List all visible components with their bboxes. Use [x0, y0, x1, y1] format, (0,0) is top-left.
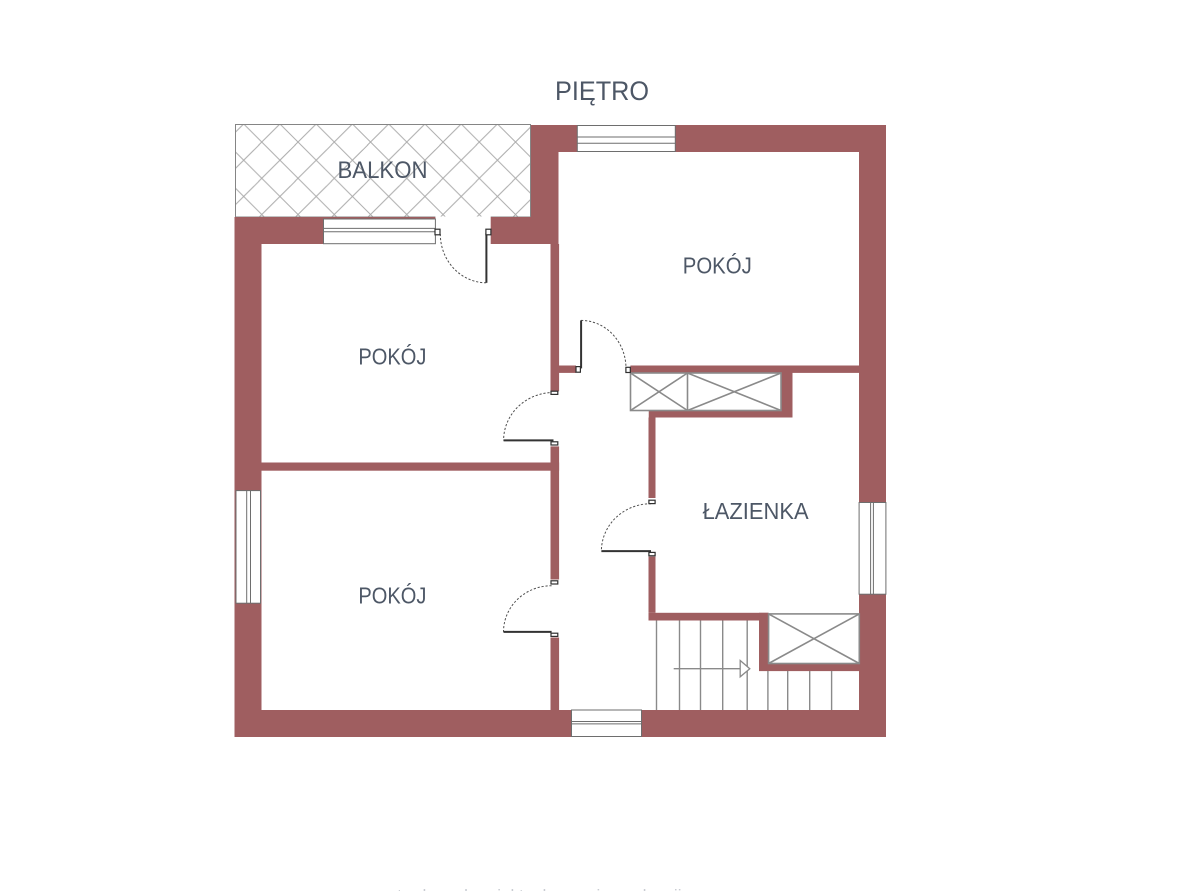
svg-text:ŁAZIENKA: ŁAZIENKA — [703, 498, 810, 524]
svg-text:POKÓJ: POKÓJ — [683, 253, 752, 279]
svg-text:POKÓJ: POKÓJ — [358, 343, 426, 369]
svg-text:BALKON: BALKON — [338, 157, 428, 184]
svg-text:www.extradom.pl projekty domow: www.extradom.pl projekty domow i rezyden… — [338, 886, 682, 891]
svg-text:POKÓJ: POKÓJ — [358, 582, 426, 608]
svg-text:PIĘTRO: PIĘTRO — [555, 76, 649, 106]
